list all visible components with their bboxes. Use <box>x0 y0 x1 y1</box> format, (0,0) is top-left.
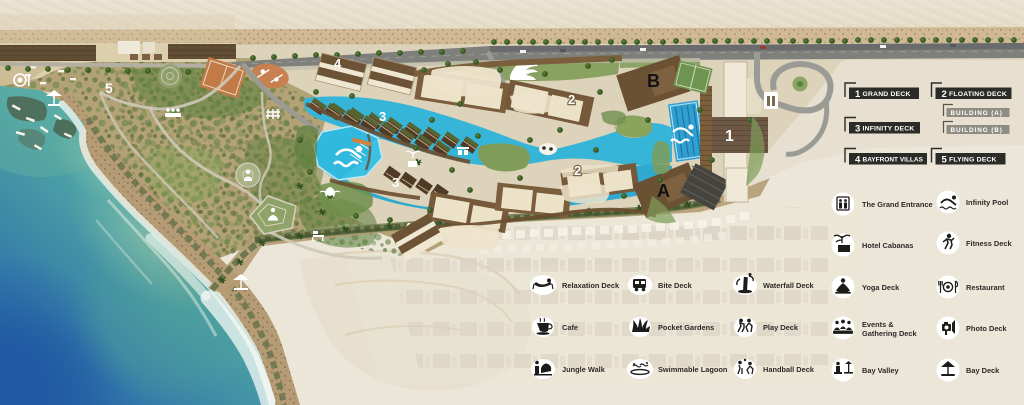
svg-text:B: B <box>647 71 660 91</box>
svg-text:Waterfall Deck: Waterfall Deck <box>763 281 815 290</box>
svg-text:5: 5 <box>105 80 113 96</box>
svg-text:4: 4 <box>855 154 861 165</box>
svg-text:Gathering Deck: Gathering Deck <box>862 329 918 338</box>
svg-text:Pocket Gardens: Pocket Gardens <box>658 323 714 332</box>
svg-text:FLOATING DECK: FLOATING DECK <box>949 91 1007 98</box>
svg-text:The Grand Entrance: The Grand Entrance <box>862 200 933 209</box>
svg-text:BUILDING (A): BUILDING (A) <box>951 110 1003 117</box>
svg-text:A: A <box>657 181 670 201</box>
svg-text:5: 5 <box>942 154 948 165</box>
svg-text:Bite Deck: Bite Deck <box>658 281 693 290</box>
svg-text:Photo Deck: Photo Deck <box>966 324 1008 333</box>
svg-text:Relaxation Deck: Relaxation Deck <box>562 281 620 290</box>
svg-text:Play Deck: Play Deck <box>763 323 799 332</box>
svg-text:Events &: Events & <box>862 320 894 329</box>
svg-text:Infinity Pool: Infinity Pool <box>966 198 1008 207</box>
svg-text:BAYFRONT VILLAS: BAYFRONT VILLAS <box>863 157 924 164</box>
svg-text:3: 3 <box>379 109 386 124</box>
svg-text:Yoga Deck: Yoga Deck <box>862 283 900 292</box>
svg-text:GRAND DECK: GRAND DECK <box>863 91 911 98</box>
svg-text:Swimmable Lagoon: Swimmable Lagoon <box>658 365 728 374</box>
svg-text:Cafe: Cafe <box>562 323 578 332</box>
svg-text:2: 2 <box>942 89 947 100</box>
svg-text:BUILDING (B): BUILDING (B) <box>951 127 1003 134</box>
svg-text:Jungle Walk: Jungle Walk <box>562 365 606 374</box>
svg-text:Fitness Deck: Fitness Deck <box>966 239 1012 248</box>
svg-text:1: 1 <box>855 89 861 100</box>
svg-text:Bay Deck: Bay Deck <box>966 366 1000 375</box>
svg-text:2: 2 <box>568 92 575 107</box>
svg-text:1: 1 <box>725 128 734 145</box>
svg-text:3: 3 <box>392 175 399 190</box>
svg-text:Restaurant: Restaurant <box>966 283 1005 292</box>
svg-text:2: 2 <box>574 163 581 178</box>
svg-text:3: 3 <box>855 123 860 134</box>
svg-text:Hotel Cabanas: Hotel Cabanas <box>862 241 913 250</box>
svg-text:FLYING DECK: FLYING DECK <box>949 157 997 164</box>
svg-text:Bay Valley: Bay Valley <box>862 366 899 375</box>
svg-text:INFINITY DECK: INFINITY DECK <box>863 126 915 133</box>
svg-text:4: 4 <box>334 56 342 71</box>
svg-text:Handball Deck: Handball Deck <box>763 365 815 374</box>
